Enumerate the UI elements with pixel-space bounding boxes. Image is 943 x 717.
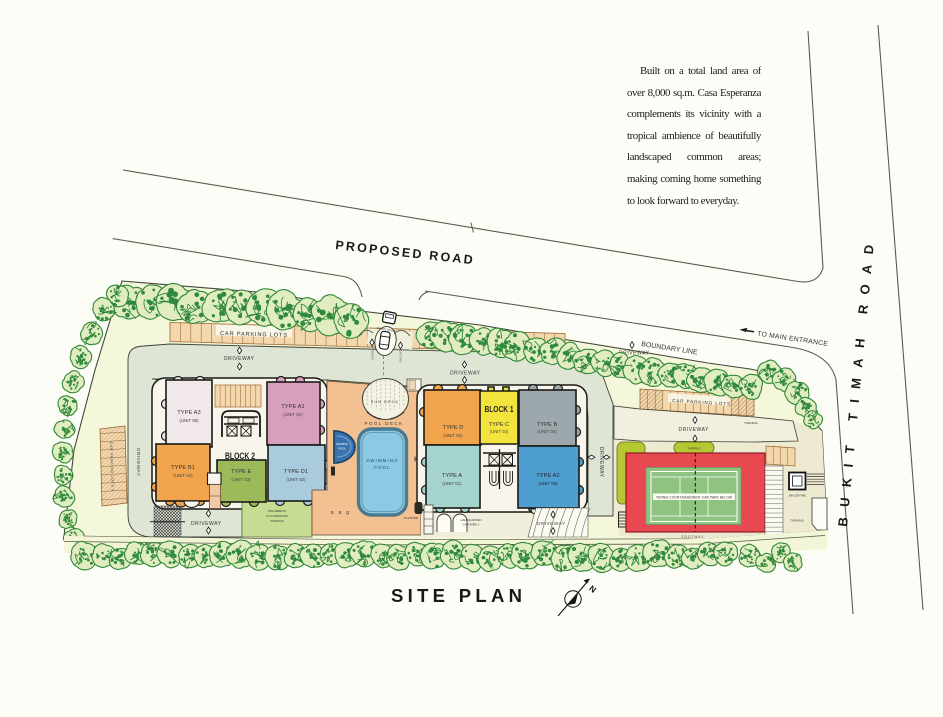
svg-text:TYPE A2: TYPE A2 <box>536 473 560 479</box>
svg-text:TURFING: TURFING <box>687 447 701 451</box>
svg-text:POOL: POOL <box>374 465 391 470</box>
svg-text:TYPE C: TYPE C <box>489 422 509 428</box>
svg-text:BLOCK 2: BLOCK 2 <box>225 451 255 461</box>
svg-text:CHILDREN'S: CHILDREN'S <box>268 509 286 513</box>
svg-text:(UNIT 04): (UNIT 04) <box>173 473 193 478</box>
svg-text:DRIVEWAY: DRIVEWAY <box>191 521 222 527</box>
svg-text:(UNIT 03): (UNIT 03) <box>490 429 509 434</box>
svg-text:(UNIT 02): (UNIT 02) <box>443 433 463 438</box>
svg-text:TENNIS COURT/BASEMENT CAR PARK: TENNIS COURT/BASEMENT CAR PARK BELOW <box>656 496 733 500</box>
svg-text:DRIVEWAY: DRIVEWAY <box>450 371 481 377</box>
svg-text:B B Q: B B Q <box>331 510 351 515</box>
svg-text:CAR PARK 1: CAR PARK 1 <box>463 523 480 527</box>
svg-text:TYPE A: TYPE A <box>442 473 462 479</box>
svg-text:TURNING: TURNING <box>744 421 758 425</box>
svg-text:(UNIT 05): (UNIT 05) <box>179 418 199 423</box>
svg-text:TYPE B: TYPE B <box>537 422 558 428</box>
svg-text:PLAYGROUND: PLAYGROUND <box>266 514 288 518</box>
svg-text:BIN CENTRE: BIN CENTRE <box>789 494 806 498</box>
svg-text:POOL: POOL <box>338 447 346 451</box>
svg-text:(UNIT 04): (UNIT 04) <box>537 429 557 434</box>
svg-text:DRIVEWAY: DRIVEWAY <box>679 427 710 433</box>
svg-text:ENTRANCE: ENTRANCE <box>371 346 374 360</box>
svg-text:TURFING: TURFING <box>270 519 284 523</box>
svg-text:(UNIT 01): (UNIT 01) <box>283 412 303 417</box>
svg-text:WADING: WADING <box>336 442 349 446</box>
svg-text:TYPE D: TYPE D <box>443 425 464 431</box>
svg-text:TYPE A3: TYPE A3 <box>177 410 201 416</box>
svg-text:TYPE A1: TYPE A1 <box>281 404 305 410</box>
svg-text:DRIVEWAY: DRIVEWAY <box>224 356 255 362</box>
svg-text:TYPE B1: TYPE B1 <box>171 465 195 471</box>
svg-text:TYPE E: TYPE E <box>231 469 252 475</box>
svg-text:TURNING: TURNING <box>790 519 804 523</box>
svg-text:SWIMMING: SWIMMING <box>366 458 399 463</box>
svg-text:SUN DECK: SUN DECK <box>371 400 399 404</box>
svg-text:DRIVEWAY: DRIVEWAY <box>598 447 604 478</box>
svg-text:(UNIT 02): (UNIT 02) <box>286 477 306 482</box>
svg-text:DRIVEWAY: DRIVEWAY <box>136 448 141 476</box>
svg-text:HANDICAPPED: HANDICAPPED <box>461 518 482 522</box>
svg-text:TYPE D1: TYPE D1 <box>284 469 308 475</box>
svg-text:(UNIT 05): (UNIT 05) <box>538 481 558 486</box>
svg-text:PLANTER: PLANTER <box>404 516 419 520</box>
svg-text:(UNIT 03): (UNIT 03) <box>231 477 251 482</box>
svg-text:(UNIT 01): (UNIT 01) <box>442 481 462 486</box>
svg-text:FOOTWAY: FOOTWAY <box>682 535 705 539</box>
svg-text:POOL DECK: POOL DECK <box>365 421 404 426</box>
svg-text:DRIVEWAY: DRIVEWAY <box>537 521 565 526</box>
svg-text:EXIT ONLY: EXIT ONLY <box>399 350 402 363</box>
svg-text:BLOCK 1: BLOCK 1 <box>485 405 514 414</box>
